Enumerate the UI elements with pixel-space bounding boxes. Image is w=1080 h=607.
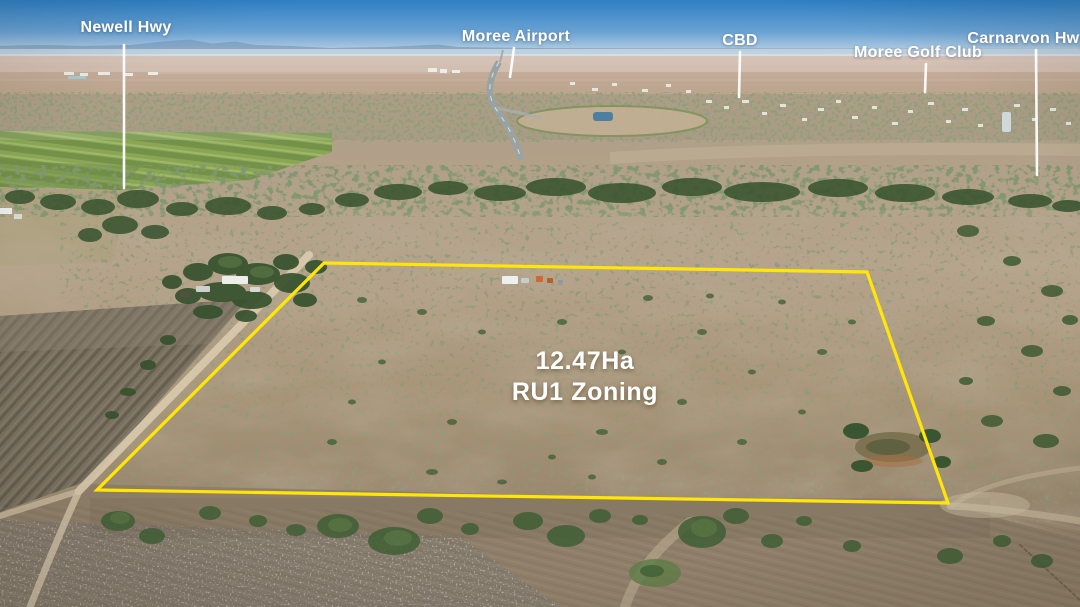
location-label-newell-hwy: Newell Hwy xyxy=(80,19,171,37)
leader-line-cbd xyxy=(739,52,740,97)
leader-line-moree-golf-club xyxy=(925,64,926,92)
aerial-scene-graphic xyxy=(0,0,1080,607)
aerial-property-photo: Newell Hwy Moree Airport CBD Moree Golf … xyxy=(0,0,1080,607)
area-zoning-label: 12.47Ha RU1 Zoning xyxy=(512,346,658,408)
property-area-text: 12.47Ha xyxy=(512,346,658,377)
property-zoning-text: RU1 Zoning xyxy=(512,377,658,408)
landscape xyxy=(0,0,1080,607)
location-label-cbd: CBD xyxy=(722,32,758,50)
location-label-moree-airport: Moree Airport xyxy=(462,28,570,46)
location-label-carnarvon-hwy: Carnarvon Hwy xyxy=(967,30,1080,48)
leader-line-carnarvon-hwy xyxy=(1036,50,1037,175)
location-label-moree-golf-club: Moree Golf Club xyxy=(854,44,982,62)
